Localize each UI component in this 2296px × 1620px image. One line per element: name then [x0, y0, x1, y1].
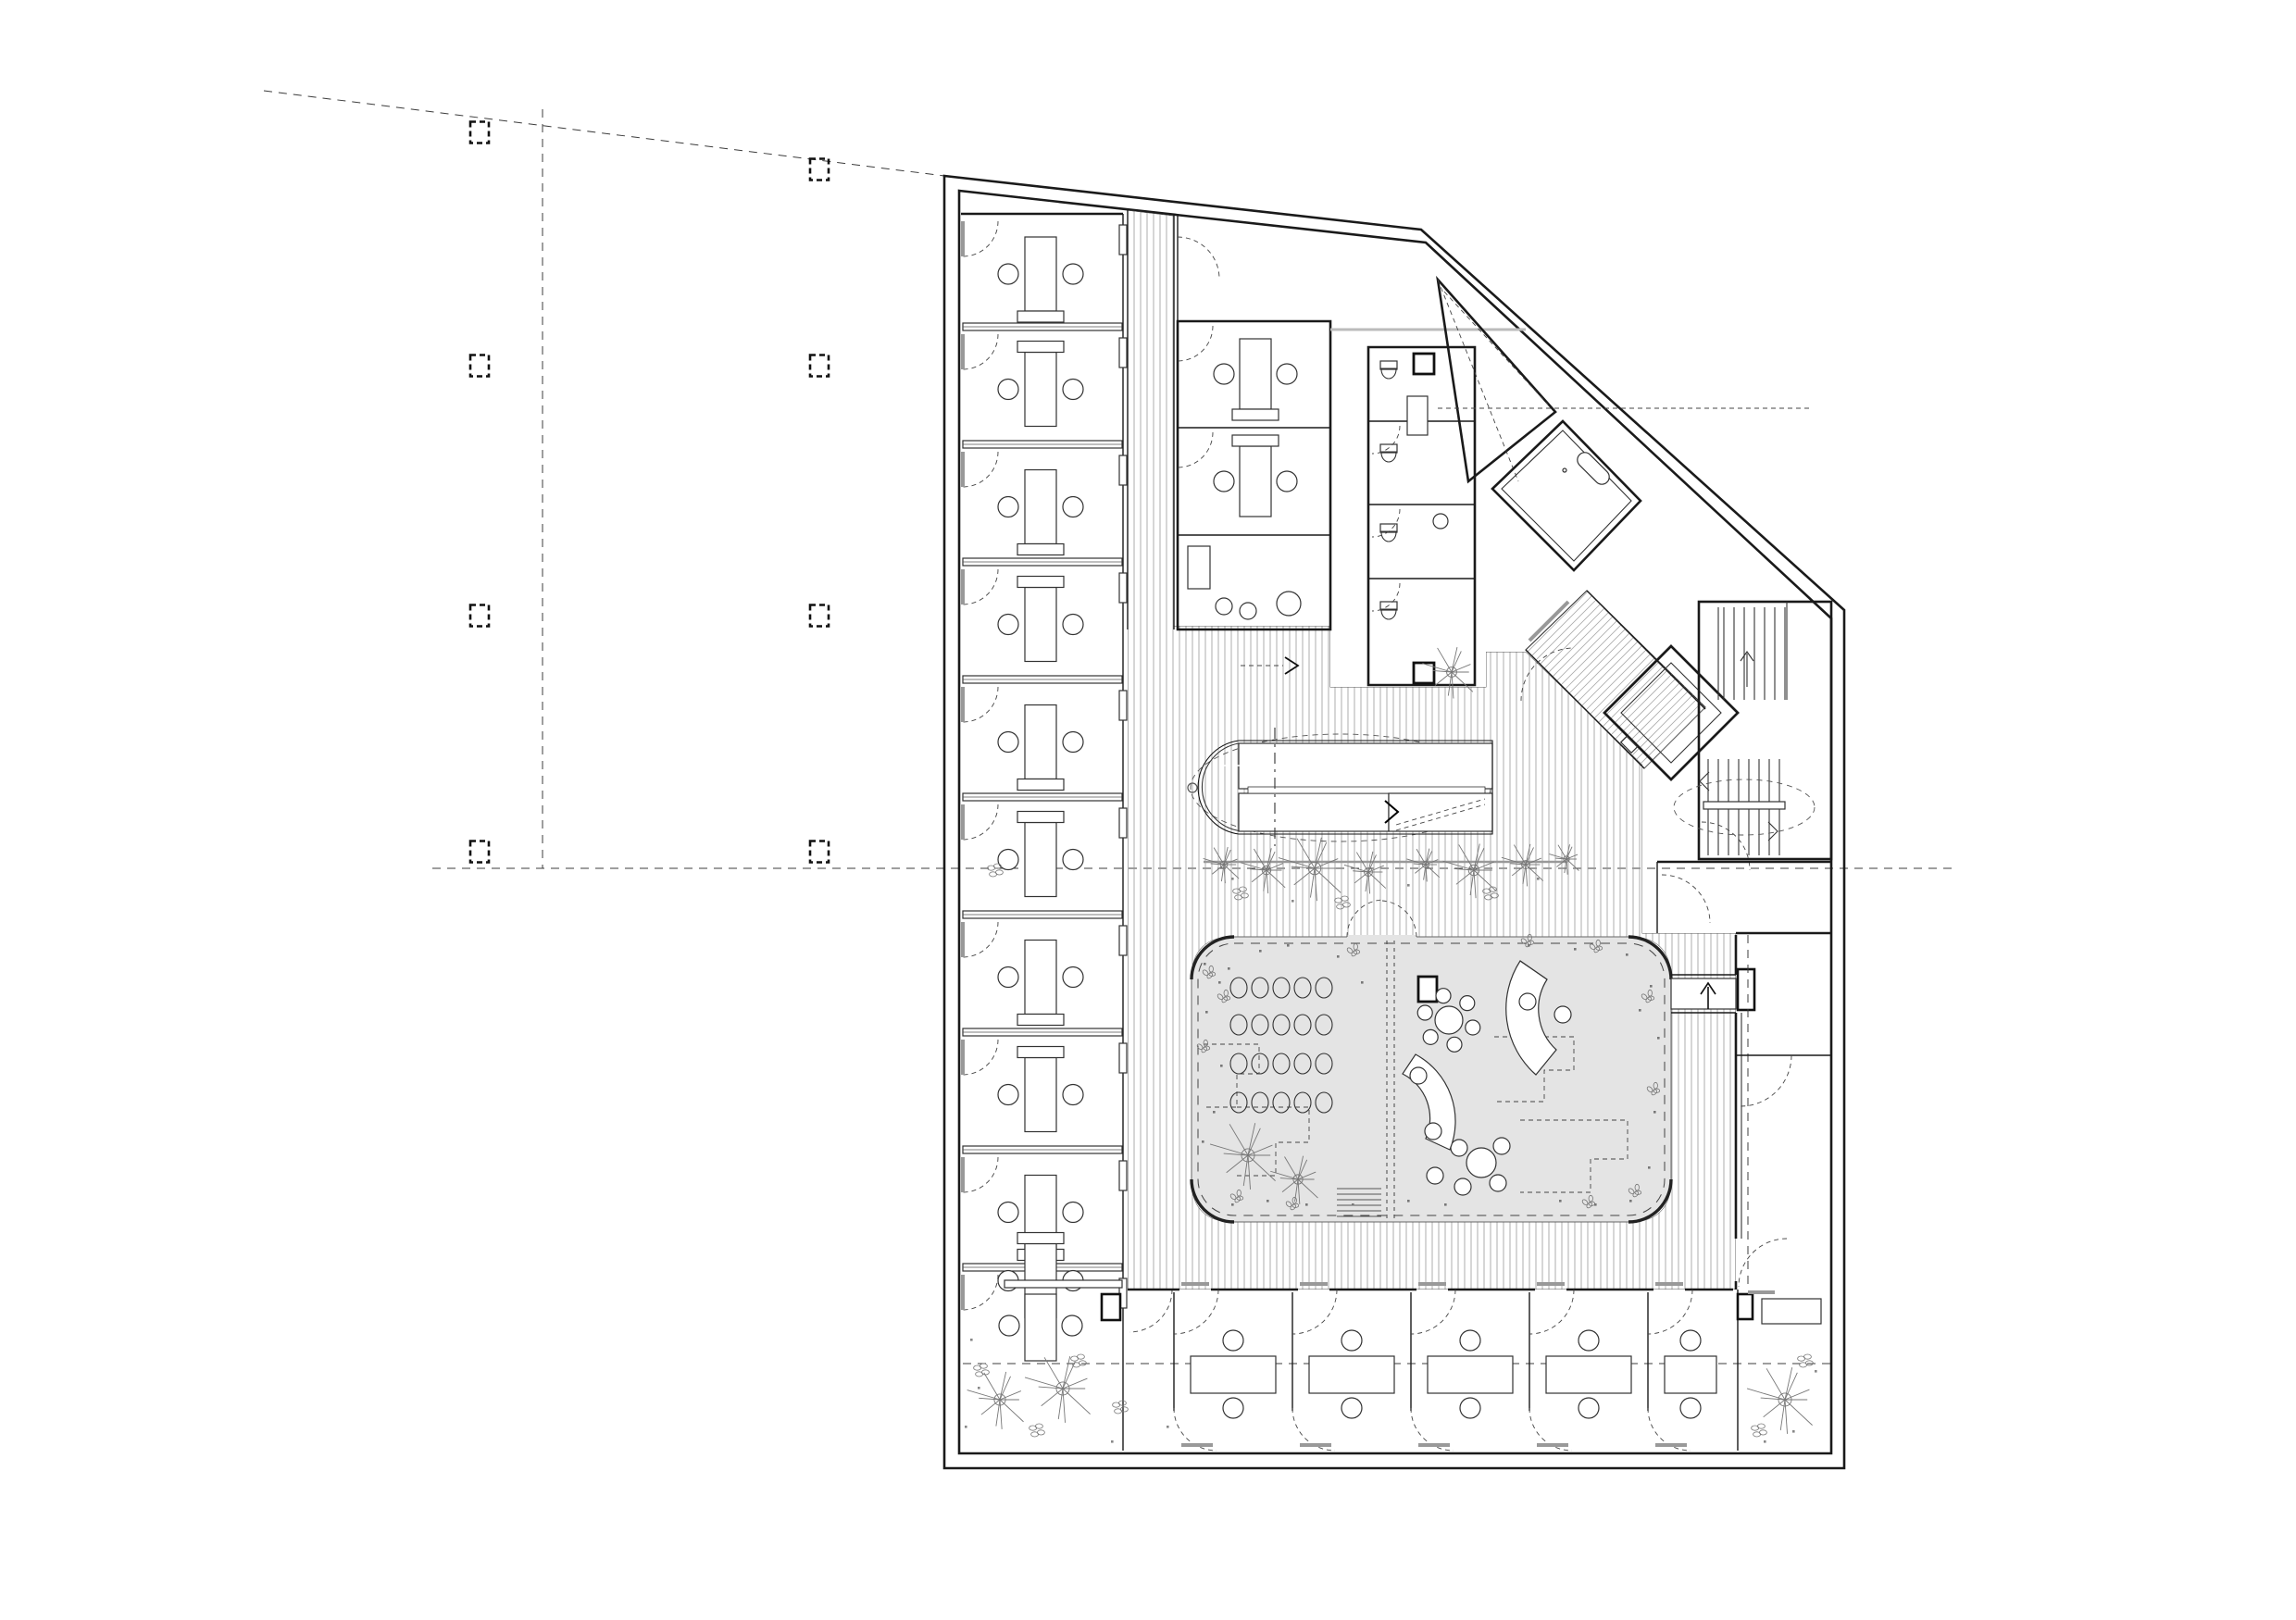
chair: [1277, 471, 1297, 492]
stipple-dot: [1639, 1009, 1641, 1012]
plant-frond: [1785, 1400, 1813, 1426]
door-sill: [1119, 225, 1127, 255]
workstation-desk: [1665, 1356, 1716, 1393]
wc-cluster: [1368, 347, 1475, 685]
diag-hatch-line: [1798, 537, 2076, 815]
plant-frond: [1063, 1356, 1070, 1389]
stipple-dot: [1407, 884, 1410, 887]
chair: [1063, 1085, 1083, 1105]
plant-frond: [1415, 865, 1426, 873]
chair: [1063, 380, 1083, 400]
desk: [1025, 1058, 1056, 1132]
chair: [1423, 1029, 1438, 1044]
door-swing-arc: [1129, 1290, 1172, 1332]
stipple-dot: [1352, 1203, 1354, 1206]
diag-hatch-line: [1673, 537, 1951, 815]
pod-dot: [1563, 468, 1566, 472]
chair: [998, 967, 1018, 988]
desk-cap: [1017, 1047, 1064, 1058]
column-marker: [810, 841, 829, 863]
stipple-dot: [1167, 1426, 1169, 1428]
desk-cap: [1232, 435, 1279, 446]
stipple-dot: [1648, 1166, 1651, 1169]
plant-frond: [1267, 870, 1268, 893]
desk-cap: [1017, 1233, 1064, 1244]
flower-petal: [1035, 1424, 1042, 1428]
diag-hatch-line: [1506, 537, 1784, 815]
diag-hatch-line: [1781, 537, 2059, 815]
stipple-dot: [1218, 981, 1221, 984]
stipple-dot: [1231, 1203, 1234, 1206]
door-swing-arc: [1648, 1290, 1692, 1334]
door-sill: [1119, 808, 1127, 838]
door-swing-arc: [963, 334, 998, 369]
stair2-center-rail: [1703, 802, 1785, 809]
chair: [1519, 993, 1536, 1010]
stipple-dot: [1361, 981, 1364, 984]
stair-ext: [1389, 793, 1492, 831]
plant-frond: [996, 1400, 1000, 1427]
chair: [1223, 1330, 1243, 1351]
flower-petal: [1337, 904, 1344, 909]
stipple-dot: [1537, 878, 1540, 880]
basin: [1433, 514, 1448, 529]
door-swing-arc: [1178, 237, 1219, 279]
stipple-dot: [1444, 1203, 1447, 1206]
desk-cap: [1017, 544, 1064, 555]
diag-hatch-line: [1698, 537, 1976, 815]
stipple-dot: [1407, 1200, 1410, 1203]
door-swing-arc: [963, 221, 998, 256]
plant-frond: [1452, 672, 1473, 692]
plant-frond: [1058, 1389, 1063, 1419]
diag-door-leaf: [1529, 602, 1568, 641]
stool: [1451, 1140, 1467, 1156]
chair: [998, 264, 1018, 284]
door-swing-arc: [963, 1157, 998, 1192]
plant-frond: [1526, 865, 1528, 886]
plant-frond: [1252, 870, 1267, 882]
diag-hatch-line: [1806, 537, 2084, 815]
chair: [1063, 1203, 1083, 1223]
shaft-column: [1414, 354, 1434, 374]
stair-center-rail: [1248, 787, 1485, 793]
stipple-dot: [1559, 1200, 1562, 1203]
chair: [1062, 1315, 1082, 1336]
desk-cap: [1017, 1015, 1064, 1026]
east-exit-floor: [1671, 978, 1736, 1009]
diag-hatch-line: [1515, 537, 1792, 815]
stipple-dot: [1205, 1011, 1208, 1014]
flower-petal: [1077, 1354, 1084, 1359]
stool: [1454, 1178, 1471, 1195]
plant-frond: [1435, 672, 1452, 685]
chair: [998, 615, 1018, 635]
chair: [1460, 1398, 1480, 1418]
side-table: [1762, 1299, 1821, 1324]
chair: [999, 1315, 1019, 1336]
diag-hatch-line: [1715, 537, 1992, 815]
plant-frond: [1474, 870, 1476, 898]
plant-frond: [1267, 870, 1285, 888]
plant-frond: [1764, 1400, 1785, 1417]
flower-petal: [976, 1372, 983, 1377]
door-swing-arc: [963, 687, 998, 722]
door-swing-arc: [963, 569, 998, 604]
stipple-dot: [1231, 878, 1234, 880]
workstation-desk: [1309, 1356, 1394, 1393]
chair: [1341, 1330, 1362, 1351]
pod-room-inner: [1502, 430, 1631, 561]
void-diagonal-dashed: [1438, 280, 1518, 481]
door-swing-arc: [1292, 1290, 1337, 1334]
chair: [1214, 364, 1234, 384]
door-swing-arc: [1529, 1290, 1574, 1334]
door-swing-arc: [1174, 1290, 1218, 1334]
chair: [1425, 1123, 1441, 1140]
chair: [1063, 732, 1083, 753]
diag-hatch-line: [1740, 537, 2017, 815]
workstation-desk: [1546, 1356, 1631, 1393]
door-swing-arc: [1382, 901, 1416, 937]
stipple-dot: [1287, 944, 1290, 947]
stipple-dot: [1202, 1140, 1204, 1143]
plant-frond: [1042, 1389, 1063, 1406]
desk-cap: [1017, 779, 1064, 791]
plant-frond: [1526, 865, 1543, 881]
chair: [1277, 364, 1297, 384]
stipple-dot: [1259, 950, 1262, 953]
door-swing-arc: [1739, 1239, 1787, 1287]
chair: [1680, 1330, 1701, 1351]
stipple-dot: [1792, 1430, 1795, 1433]
plant-frond: [1000, 1372, 1006, 1400]
void-triangle: [1438, 280, 1555, 481]
wc-bowl: [1381, 368, 1396, 379]
courtyard-column: [1418, 977, 1437, 1002]
diag-corridor-wall: [1526, 650, 1644, 768]
plant-frond: [1063, 1389, 1066, 1423]
plant-frond: [1000, 1400, 1002, 1429]
chair: [998, 1085, 1018, 1105]
courtyard: [1192, 900, 1754, 1222]
pod-door-leaf: [1574, 449, 1612, 487]
door-sill: [1119, 1043, 1127, 1073]
stipple-dot: [1650, 985, 1653, 988]
column-marker: [470, 841, 489, 863]
sink: [1407, 396, 1428, 435]
main-stair: [1188, 728, 1492, 846]
flower-petal: [1800, 1363, 1807, 1367]
chair: [1063, 967, 1083, 988]
plant-frond: [1368, 872, 1370, 893]
chair: [1554, 1006, 1571, 1023]
chair: [1578, 1398, 1599, 1418]
chair: [1214, 471, 1234, 492]
workstation-desk: [1428, 1356, 1513, 1393]
plant-frond: [1780, 1400, 1785, 1430]
stair-lower-flight: [1239, 793, 1389, 831]
diag-hatch-line: [1756, 537, 2034, 815]
desk-cap: [1017, 812, 1064, 823]
stipple-dot: [1815, 1370, 1817, 1373]
workstation-desk: [1191, 1356, 1276, 1393]
chair: [1410, 1067, 1427, 1084]
desk: [1240, 446, 1271, 517]
flower-petal: [1803, 1354, 1811, 1359]
column-marker: [470, 355, 489, 377]
planter-row: [1204, 838, 1579, 901]
diag-hatch-line: [1615, 537, 1892, 815]
chair: [998, 1203, 1018, 1223]
round-table: [1466, 1148, 1496, 1178]
chair: [998, 732, 1018, 753]
flower-petal: [1757, 1424, 1765, 1428]
door-swing-arc: [1662, 875, 1710, 923]
stipple-dot: [1574, 948, 1577, 951]
desk: [1025, 705, 1056, 779]
flower-petal: [990, 872, 997, 877]
column-marker: [810, 355, 829, 377]
door-sill: [1119, 691, 1127, 720]
door-sill: [1119, 573, 1127, 603]
round-table: [1277, 592, 1301, 616]
diag-hatch-line: [1490, 537, 1767, 815]
chair: [1680, 1398, 1701, 1418]
diag-hatch-line: [1681, 537, 1959, 815]
bottom-workstation-band: [1128, 1284, 1821, 1451]
plant-frond: [1294, 868, 1315, 885]
corner-room-shelf: [1004, 1280, 1122, 1288]
door-swing-arc: [963, 452, 998, 487]
stipple-dot: [1291, 900, 1294, 903]
chair: [1460, 1330, 1480, 1351]
diag-hatch-line: [1531, 537, 1809, 815]
stipple-dot: [1305, 1203, 1308, 1206]
stipple-dot: [1764, 1440, 1766, 1443]
chair: [1063, 850, 1083, 870]
desk: [1025, 588, 1056, 662]
stipple-dot: [970, 1339, 973, 1341]
stair2-up-arrow: [1741, 652, 1753, 687]
stipple-dot: [1626, 953, 1628, 956]
floor-plan-page: [0, 0, 2296, 1620]
diag-hatch-line: [1581, 537, 1859, 815]
door-swing-arc: [963, 1040, 998, 1075]
diag-hatch-line: [1690, 537, 1967, 815]
stipple-dot: [1337, 955, 1340, 958]
east-exit-pier: [1738, 969, 1754, 1010]
diag-hatch-line: [1640, 537, 1917, 815]
plant-frond: [1566, 859, 1567, 875]
door-sill: [1119, 455, 1127, 485]
chair: [1216, 598, 1232, 615]
stipple-dot: [1213, 1111, 1216, 1114]
couch: [1188, 546, 1210, 589]
stipple-dot: [1267, 1200, 1269, 1203]
diag-hatch-line: [1456, 537, 1734, 815]
chair: [1466, 1020, 1480, 1035]
flower-petal: [1341, 896, 1348, 901]
plant-frond: [1354, 872, 1368, 883]
chair: [1578, 1330, 1599, 1351]
flower-petal: [980, 1364, 987, 1368]
desk: [1025, 1294, 1056, 1361]
stipple-dot: [1657, 1037, 1660, 1040]
chair: [1341, 1398, 1362, 1418]
diag-hatch-line: [1548, 537, 1826, 815]
door-swing-arc: [1521, 648, 1574, 701]
diag-hatch-line: [1473, 537, 1751, 815]
stipple-dot: [1629, 1200, 1632, 1203]
column-marker: [470, 605, 489, 627]
column-marker: [470, 122, 489, 143]
chair: [1460, 996, 1475, 1011]
diag-hatch-line: [1665, 537, 1942, 815]
flower-petal: [1485, 895, 1492, 900]
stair-cap: [1202, 743, 1239, 831]
column: [1102, 1294, 1120, 1320]
door-sill: [1119, 926, 1127, 955]
diag-hatch-line: [1731, 537, 2009, 815]
door-sill: [1119, 338, 1127, 368]
desk: [1025, 237, 1056, 311]
chair: [1063, 497, 1083, 517]
round-table: [1435, 1006, 1463, 1034]
plant-frond: [1785, 1367, 1792, 1400]
door-swing-arc: [1411, 1290, 1455, 1334]
wc-bowl: [1381, 452, 1396, 462]
desk: [1025, 470, 1056, 544]
plant-frond: [1310, 868, 1315, 898]
plant-frond: [1512, 865, 1526, 876]
flower-petal: [1031, 1432, 1039, 1437]
stipple-dot: [1228, 967, 1230, 970]
stipple-dot: [965, 1426, 967, 1428]
plant-frond: [981, 1400, 1000, 1414]
flower-petal: [1235, 895, 1242, 900]
stipple-dot: [1204, 963, 1206, 966]
flower-petal: [1115, 1409, 1122, 1414]
plant-frond: [1474, 844, 1479, 870]
door-swing-arc: [963, 922, 998, 957]
door-swing-arc: [963, 804, 998, 840]
stipple-dot: [1220, 1065, 1223, 1067]
site-boundary-dashed: [264, 91, 944, 176]
stool: [1493, 1138, 1510, 1154]
left-office-column: [961, 210, 1174, 1451]
diag-hatch-line: [1765, 537, 2042, 815]
desk-cap: [1017, 342, 1064, 353]
plant-frond: [1315, 868, 1341, 892]
chair: [1063, 264, 1083, 284]
chair: [1417, 1005, 1432, 1020]
door-sill: [1119, 1161, 1127, 1190]
wc-bowl: [1381, 531, 1396, 542]
diag-hatch-line: [1773, 537, 2051, 815]
chair: [1447, 1037, 1462, 1052]
chair: [1063, 615, 1083, 635]
chair: [1223, 1398, 1243, 1418]
column-marker: [810, 159, 829, 181]
stipple-dot: [1111, 1440, 1114, 1443]
chair: [998, 380, 1018, 400]
wc-bowl: [1381, 609, 1396, 619]
diag-hatch-line: [1556, 537, 1834, 815]
plant-frond: [1063, 1389, 1091, 1414]
diag-hatch-line: [1565, 537, 1842, 815]
desk-cap: [1017, 577, 1064, 588]
door-swing-arc: [1178, 432, 1213, 467]
desk: [1025, 353, 1056, 427]
desk: [1025, 941, 1056, 1015]
diag-hatch-line: [1606, 537, 1884, 815]
desk-cap: [1232, 409, 1279, 420]
stool: [1490, 1175, 1506, 1191]
floor-plan-drawing: [0, 0, 2296, 1620]
desk-cap: [1017, 311, 1064, 322]
desk: [1025, 823, 1056, 897]
door-swing-arc: [1178, 326, 1213, 361]
chair: [1436, 989, 1451, 1003]
column-marker: [810, 605, 829, 627]
flower-petal: [1753, 1432, 1761, 1437]
desk: [1240, 339, 1271, 409]
plant-frond: [1785, 1400, 1788, 1434]
door-swing-arc: [963, 1275, 998, 1310]
column: [1738, 1294, 1753, 1319]
chair: [1240, 603, 1256, 619]
flower-petal: [1239, 887, 1246, 891]
plant-frond: [1000, 1400, 1024, 1422]
stipple-dot: [1653, 1111, 1656, 1114]
stool: [1427, 1167, 1443, 1184]
door-swing-arc: [1347, 900, 1384, 937]
plant-frond: [1368, 872, 1386, 889]
stipple-dot: [978, 1387, 980, 1389]
chair: [998, 497, 1018, 517]
